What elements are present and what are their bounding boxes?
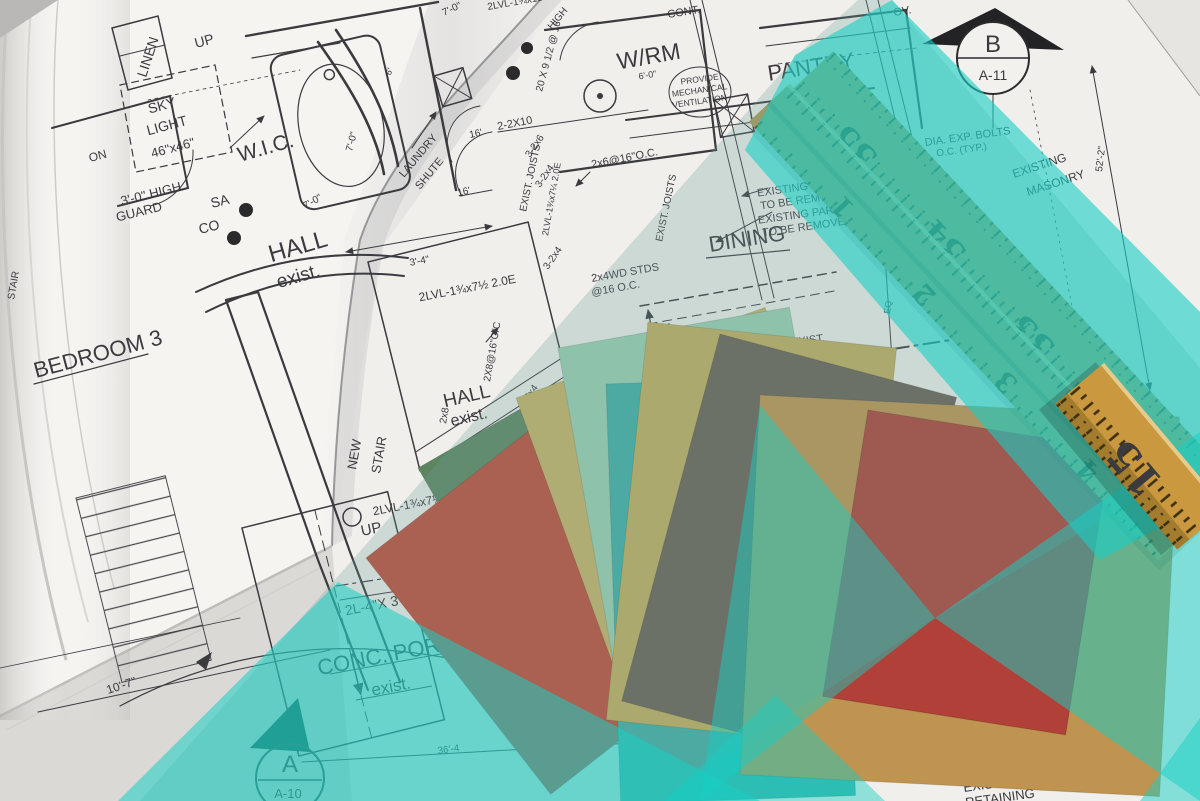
co-detector-dot <box>227 231 241 245</box>
sa-detector-dot <box>239 203 253 217</box>
dot-2 <box>506 66 520 80</box>
photo-blueprints-color-swatches-scene: B A-11 A A-10 W.I.C. LINEN UP SKY LIGHT … <box>0 0 1200 801</box>
detail-sheet: A-11 <box>979 67 1008 83</box>
scene-canvas: B A-11 A A-10 W.I.C. LINEN UP SKY LIGHT … <box>0 0 1200 801</box>
detail-letter: B <box>985 31 1001 58</box>
dot-1 <box>521 42 533 54</box>
sink-drain <box>597 93 603 99</box>
